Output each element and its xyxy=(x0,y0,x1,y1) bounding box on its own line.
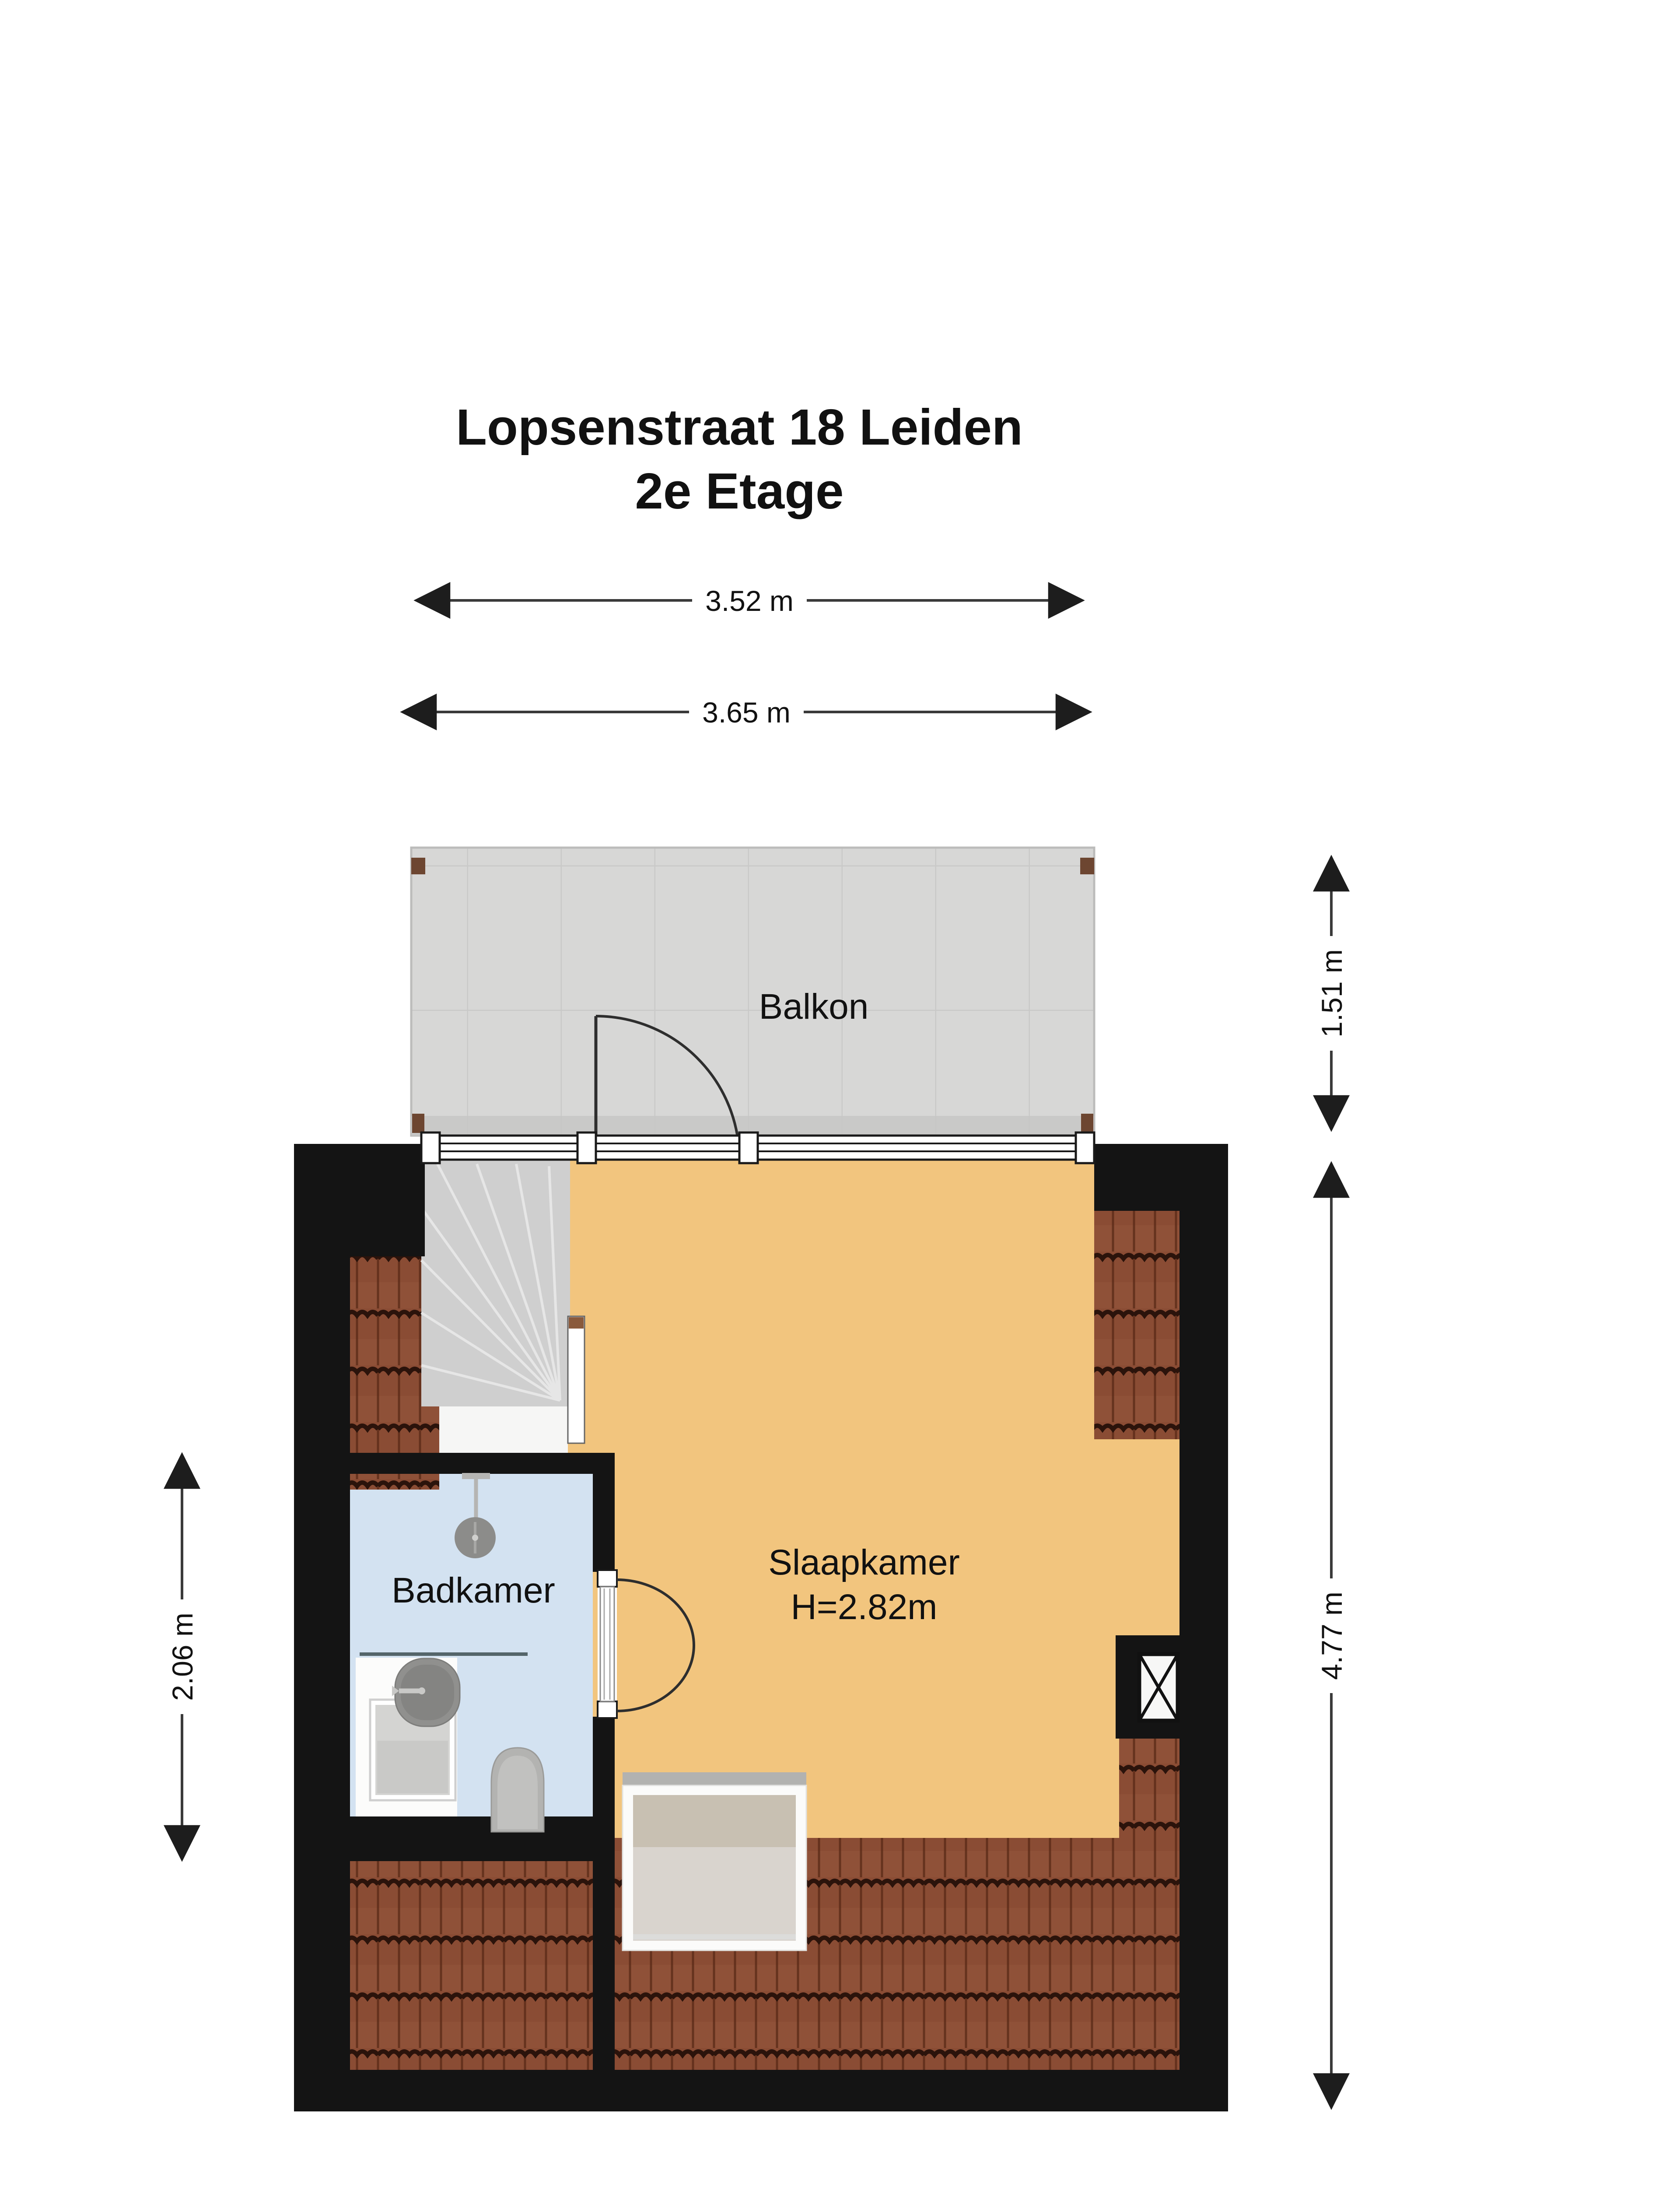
tiles-bathroom-inner xyxy=(350,1474,439,1490)
stairs-landing xyxy=(439,1406,568,1453)
bedroom-ceiling-height: H=2.82m xyxy=(791,1587,937,1627)
dim-label-right-balcony: 1.51 m xyxy=(1316,949,1348,1038)
stairs-railing-cap xyxy=(569,1317,584,1329)
dim-label-top-outer: 3.65 m xyxy=(702,696,791,729)
tiles-bottom-left xyxy=(350,1861,593,2070)
wall-bathroom-right-lower xyxy=(593,1717,615,1816)
balcony-label: Balkon xyxy=(759,987,869,1027)
bathroom-door-jamb-top xyxy=(598,1570,617,1587)
stairs-railing xyxy=(568,1316,584,1443)
balcony-floor xyxy=(411,848,1094,1136)
wall-top-left-block xyxy=(294,1144,425,1256)
balcony-post-top-left xyxy=(411,858,425,874)
wall-bathroom-top xyxy=(294,1453,615,1474)
wall-bathroom-right-upper xyxy=(593,1453,615,1572)
balcony-post-bottom-right xyxy=(1081,1114,1093,1133)
toilet-icon xyxy=(491,1748,544,1832)
skylight-icon xyxy=(623,1772,806,1950)
page-title-line1: Lopsenstraat 18 Leiden xyxy=(456,399,1023,456)
dim-label-top-inner: 3.52 m xyxy=(705,585,794,617)
sink-icon xyxy=(392,1659,460,1726)
floor-plan-canvas: Lopsenstraat 18 Leiden 2e Etage Balkon xyxy=(0,0,1680,2188)
tiles-below-window xyxy=(1119,1739,1179,1839)
stairs-icon xyxy=(421,1160,584,1453)
dim-label-left-bathroom: 2.06 m xyxy=(166,1613,199,1701)
balcony-post-bottom-left xyxy=(412,1114,424,1133)
balcony: Balkon xyxy=(411,848,1094,1160)
page-title-line2: 2e Etage xyxy=(635,463,843,519)
bathroom: Badkamer xyxy=(350,1473,593,1832)
dim-label-right-main: 4.77 m xyxy=(1316,1592,1348,1680)
window-band-post-1 xyxy=(421,1133,440,1163)
tiles-right-strip xyxy=(1094,1211,1179,1439)
window-band xyxy=(421,1133,1094,1163)
wall-top-right-block xyxy=(1094,1144,1228,1211)
wall-left xyxy=(294,1256,350,2111)
wall-bathroom-bottom xyxy=(294,1816,615,1861)
bedroom-label: Slaapkamer xyxy=(768,1543,960,1582)
bathroom-door-jamb-bottom xyxy=(598,1701,617,1718)
wall-bottom xyxy=(294,2070,1228,2111)
window-band-post-4 xyxy=(1076,1133,1094,1163)
floor-plan-page: Lopsenstraat 18 Leiden 2e Etage Balkon xyxy=(0,0,1680,2188)
balcony-post-top-right xyxy=(1080,858,1094,874)
window-band-post-2 xyxy=(577,1133,596,1163)
wall-divider-bottom xyxy=(593,1816,615,2111)
bathroom-label: Badkamer xyxy=(392,1571,555,1610)
window-band-post-3 xyxy=(739,1133,758,1163)
window-x-icon xyxy=(1139,1654,1178,1721)
